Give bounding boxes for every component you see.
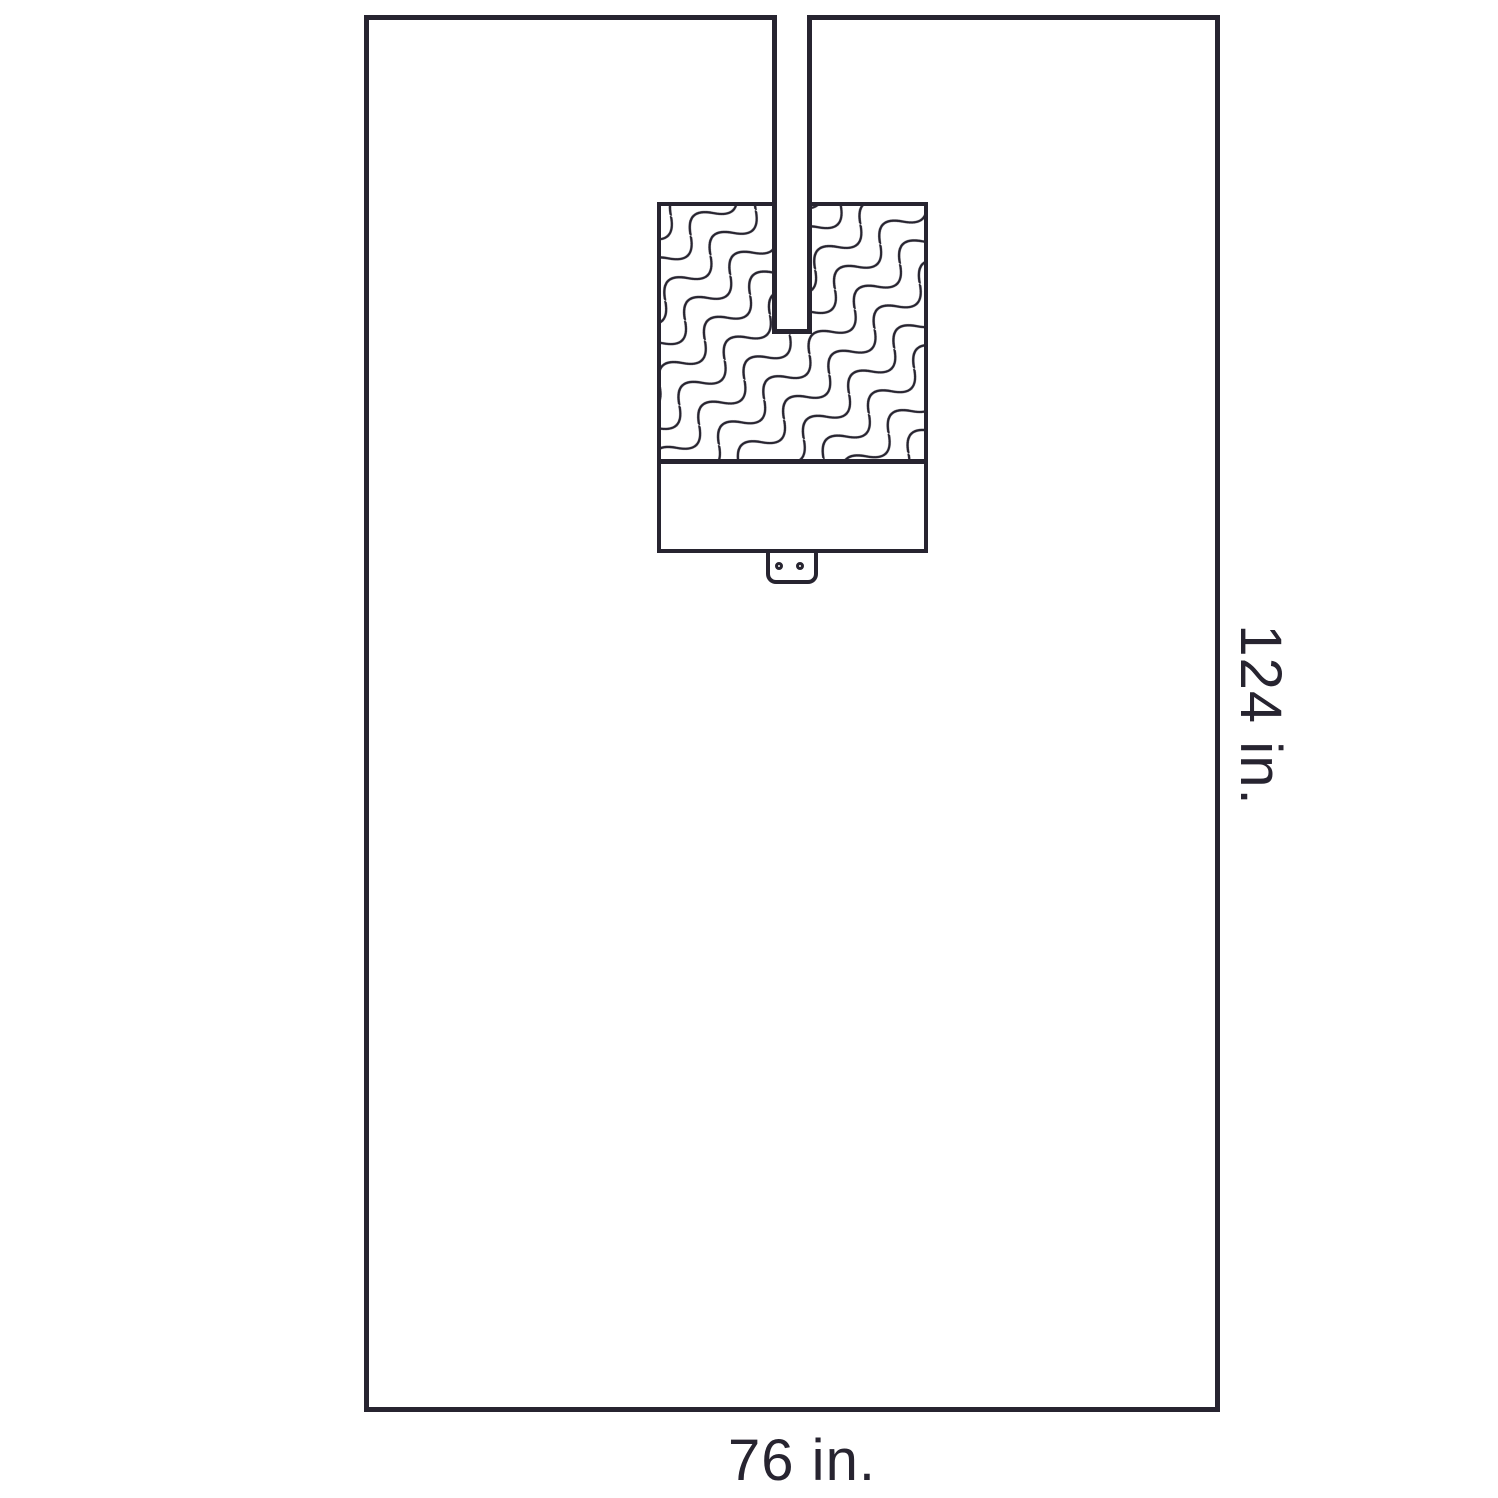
- pad-skirt: [657, 464, 928, 553]
- width-dimension-label: 76 in.: [728, 1432, 876, 1490]
- tube-holder-tab: [766, 553, 818, 584]
- fenestration-slit: [772, 15, 812, 334]
- tab-hole-right: [796, 562, 804, 570]
- height-dimension-label: 124 in.: [1231, 624, 1289, 805]
- surgical-drape-diagram: 124 in. 76 in.: [0, 0, 1498, 1498]
- tab-hole-left: [775, 562, 783, 570]
